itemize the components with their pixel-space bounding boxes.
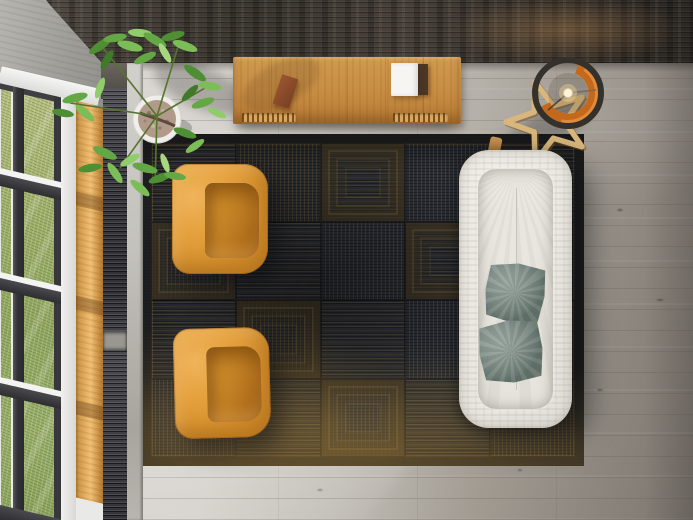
potted-plant [45,18,235,203]
vent-gap [103,331,127,351]
grass-pane-left [1,89,11,520]
window-mullion [13,86,24,520]
lamp-bulb [559,84,577,102]
sideboard-vent-right [393,113,448,122]
white-book [391,63,418,96]
living-room-top-view-render [0,0,693,520]
armchair-seat [206,346,263,422]
sideboard-vent-left [242,113,296,122]
armchair-lower [173,327,272,439]
sideboard [233,57,461,124]
